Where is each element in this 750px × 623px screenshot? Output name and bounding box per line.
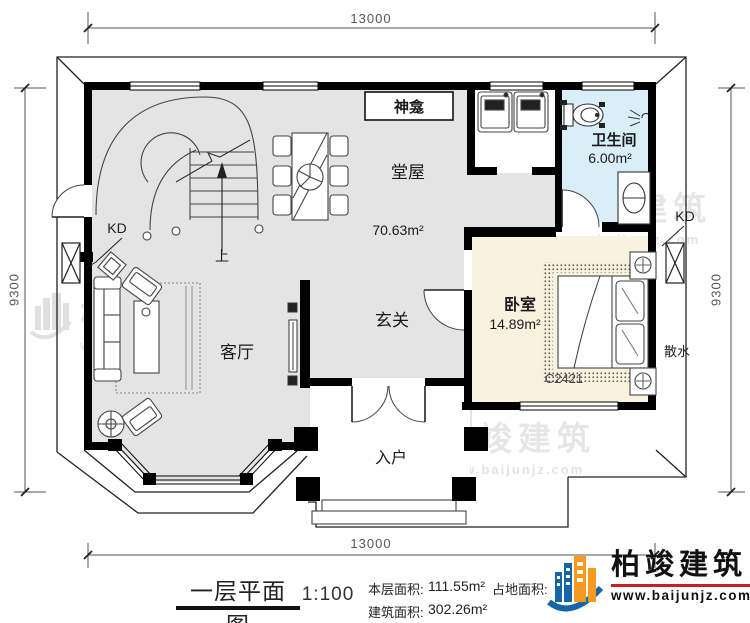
washer-label: 洗衣机 bbox=[522, 101, 534, 107]
floor-plan-page: 柏竣建筑 www.baijunjz.com 柏竣建筑 www.baijunjz.… bbox=[0, 0, 750, 623]
plan-scale: 1:100 bbox=[300, 584, 356, 606]
company-url: www.baijunjz.com bbox=[611, 588, 750, 603]
area-label-bedroom: 14.89m² bbox=[475, 316, 555, 332]
title-underline bbox=[176, 606, 300, 610]
plan-title: 一层平面图 bbox=[180, 572, 296, 623]
dim-bottom: 13000 bbox=[321, 536, 421, 551]
room-label-hall: 堂屋 bbox=[368, 158, 448, 183]
room-label-entry: 入户 bbox=[351, 444, 431, 468]
company-logo-icon bbox=[543, 550, 605, 616]
dim-top: 13000 bbox=[321, 11, 421, 26]
room-label-foyer: 玄关 bbox=[352, 306, 432, 331]
area-label-hall: 70.63m² bbox=[358, 222, 438, 238]
build-area-value: 302.26m² bbox=[428, 601, 487, 617]
room-label-shrine: 神龛 bbox=[365, 96, 453, 117]
entry-steps bbox=[312, 500, 466, 524]
room-label-bathroom: 卫生间 bbox=[574, 129, 654, 150]
dim-left: 9300 bbox=[7, 240, 22, 340]
floor-area-value: 111.55m² bbox=[428, 578, 485, 594]
company-name: 柏竣建筑 bbox=[611, 550, 750, 582]
floor-area-label: 本层面积: bbox=[368, 579, 424, 598]
dim-right: 9300 bbox=[709, 240, 724, 340]
room-label-bedroom: 卧室 bbox=[480, 291, 560, 315]
kd-label-left: KD bbox=[100, 220, 134, 236]
window-code-label: C2421 bbox=[534, 371, 594, 386]
stairs-up-label: 上 bbox=[202, 246, 242, 266]
dining-table bbox=[273, 133, 348, 220]
room-label-living: 客厅 bbox=[197, 338, 277, 363]
land-area-label: 占地面积: bbox=[492, 579, 548, 598]
washer-label: 洗衣机 bbox=[486, 101, 498, 107]
company-logo: 柏竣建筑 www.baijunjz.com bbox=[543, 550, 750, 616]
kd-label-right: KD bbox=[668, 208, 702, 224]
apron-label: 散水 bbox=[660, 341, 694, 360]
area-label-bathroom: 6.00m² bbox=[570, 150, 650, 166]
build-area-label: 建筑面积: bbox=[368, 602, 424, 621]
logo-red-rule bbox=[611, 584, 750, 587]
